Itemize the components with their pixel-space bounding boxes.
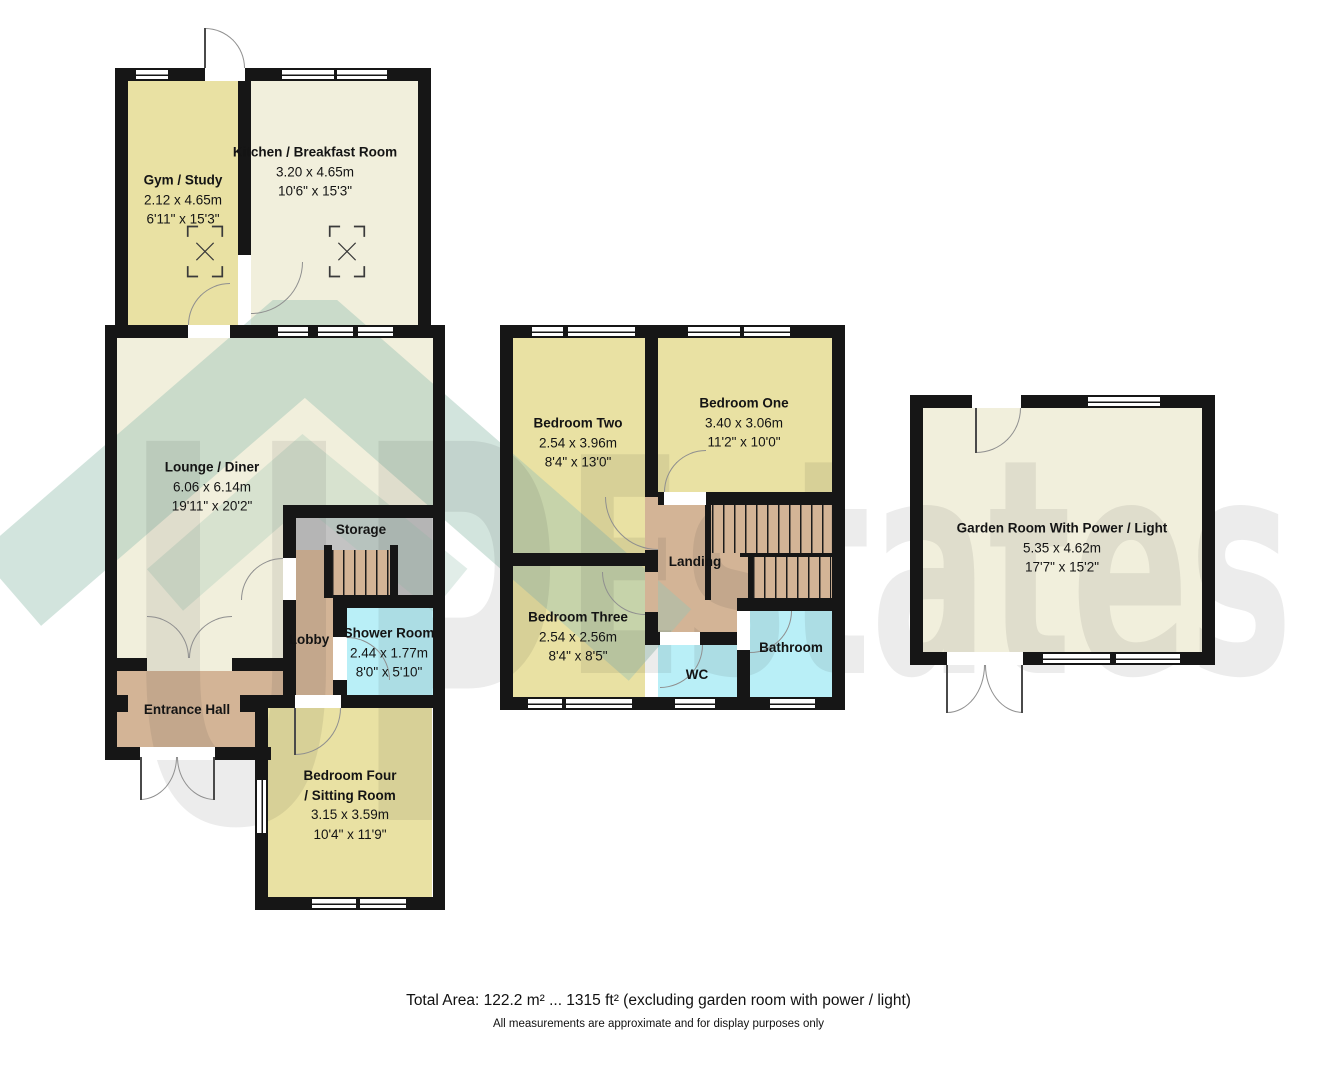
label-wc: WC bbox=[686, 665, 709, 685]
window bbox=[360, 897, 406, 910]
wall bbox=[1202, 395, 1215, 665]
wall bbox=[105, 325, 445, 338]
door-arc bbox=[140, 757, 177, 800]
room-lounge bbox=[147, 658, 232, 671]
wall bbox=[283, 505, 445, 518]
wall bbox=[500, 553, 658, 566]
label-lobby: Lobby bbox=[289, 630, 330, 650]
label-bathroom: Bathroom bbox=[759, 638, 823, 658]
label-bedroom-three: Bedroom Three 2.54 x 2.56m 8'4" x 8'5" bbox=[528, 608, 628, 667]
window bbox=[318, 325, 353, 338]
door-leaf bbox=[294, 708, 296, 755]
wall bbox=[232, 658, 296, 671]
window bbox=[282, 68, 334, 81]
window bbox=[744, 325, 790, 338]
door-gap bbox=[645, 572, 658, 612]
window bbox=[532, 325, 563, 338]
wall bbox=[105, 325, 117, 671]
label-garden-room: Garden Room With Power / Light 5.35 x 4.… bbox=[957, 519, 1168, 578]
room-landing bbox=[658, 598, 737, 632]
door-arc bbox=[947, 665, 985, 713]
label-kitchen: Kitchen / Breakfast Room 3.20 x 4.65m 10… bbox=[233, 143, 397, 202]
door-leaf bbox=[204, 28, 206, 68]
door-leaf bbox=[140, 757, 142, 800]
window bbox=[255, 780, 268, 833]
wall bbox=[832, 325, 845, 710]
wall bbox=[255, 695, 445, 708]
window bbox=[528, 697, 562, 710]
wall bbox=[105, 695, 128, 712]
stairs-first-upper-flight bbox=[712, 505, 831, 553]
door-leaf bbox=[946, 665, 948, 713]
door-gap bbox=[660, 632, 700, 645]
skylight-icon bbox=[186, 224, 224, 279]
window bbox=[675, 697, 715, 710]
door-gap bbox=[295, 695, 341, 708]
door-gap bbox=[188, 325, 230, 338]
window bbox=[1043, 652, 1110, 665]
window bbox=[688, 325, 740, 338]
wall bbox=[418, 68, 431, 325]
door-leaf bbox=[975, 408, 977, 453]
wall bbox=[115, 68, 128, 330]
wall bbox=[748, 557, 753, 598]
wall bbox=[910, 395, 1215, 408]
window bbox=[278, 325, 308, 338]
wall bbox=[740, 553, 832, 557]
room-entrance-hall bbox=[117, 671, 283, 695]
wall bbox=[737, 598, 832, 611]
label-bedroom-one: Bedroom One 3.40 x 3.06m 11'2" x 10'0" bbox=[699, 394, 788, 453]
floorplan: UP Estates bbox=[0, 0, 1317, 1080]
wall bbox=[910, 395, 923, 665]
door-arc bbox=[177, 757, 215, 800]
window bbox=[312, 897, 356, 910]
skylight-icon bbox=[328, 224, 366, 279]
total-area-text: Total Area: 122.2 m² ... 1315 ft² (exclu… bbox=[0, 992, 1317, 1010]
label-bedroom-two: Bedroom Two 2.54 x 3.96m 8'4" x 13'0" bbox=[534, 414, 623, 473]
wall bbox=[333, 595, 445, 608]
wall bbox=[500, 325, 513, 710]
label-landing: Landing bbox=[669, 552, 722, 572]
wall bbox=[433, 325, 445, 910]
door-gap bbox=[238, 255, 251, 317]
window bbox=[1116, 652, 1180, 665]
label-storage: Storage bbox=[336, 520, 386, 540]
door-leaf bbox=[1021, 665, 1023, 713]
door-gap bbox=[205, 68, 245, 81]
window bbox=[337, 68, 387, 81]
stairs-ground bbox=[332, 550, 390, 598]
window bbox=[770, 697, 815, 710]
window bbox=[566, 697, 632, 710]
label-entrance-hall: Entrance Hall bbox=[144, 700, 230, 720]
window bbox=[136, 68, 168, 81]
wall bbox=[283, 505, 296, 558]
door-gap bbox=[283, 558, 296, 600]
door-leaf bbox=[213, 757, 215, 800]
door-arc bbox=[205, 28, 245, 68]
door-arc bbox=[985, 665, 1023, 713]
room-storage bbox=[398, 550, 433, 598]
wall bbox=[324, 545, 332, 598]
disclaimer-text: All measurements are approximate and for… bbox=[0, 1018, 1317, 1030]
wall bbox=[645, 612, 658, 632]
door-gap bbox=[737, 611, 750, 650]
door-gap bbox=[947, 652, 1023, 665]
label-gym-study: Gym / Study 2.12 x 4.65m 6'11" x 15'3" bbox=[144, 171, 223, 230]
label-bedroom-four: Bedroom Four / Sitting Room 3.15 x 3.59m… bbox=[304, 766, 397, 844]
window bbox=[568, 325, 635, 338]
door-gap bbox=[972, 395, 1021, 408]
window bbox=[358, 325, 393, 338]
label-shower-room: Shower Room 2.44 x 1.77m 8'0" x 5'10" bbox=[344, 624, 435, 683]
window bbox=[1088, 395, 1160, 408]
wall bbox=[390, 545, 398, 598]
door-gap bbox=[664, 492, 706, 505]
label-lounge: Lounge / Diner 6.06 x 6.14m 19'11" x 20'… bbox=[165, 458, 260, 517]
stairs-first-lower-flight bbox=[753, 557, 831, 598]
wall bbox=[645, 338, 658, 497]
